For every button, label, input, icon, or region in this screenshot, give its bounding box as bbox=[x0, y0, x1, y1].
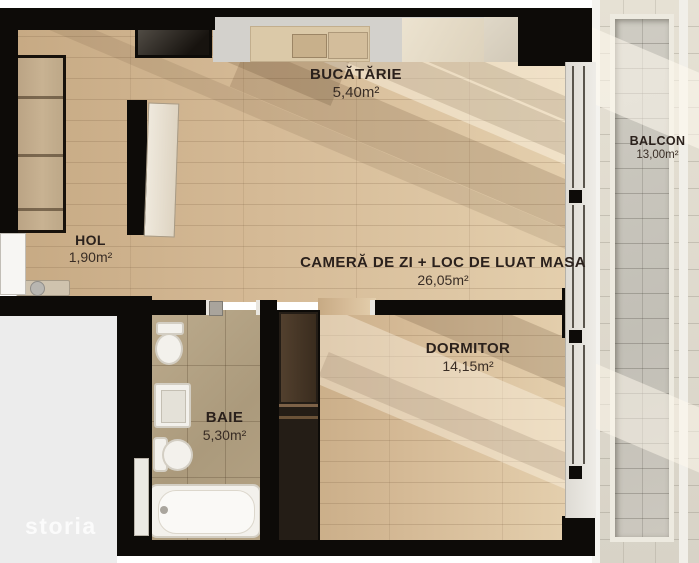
wall-top-right-pillar bbox=[518, 8, 592, 66]
bedroom-wardrobe bbox=[277, 310, 320, 542]
entrance-door-leaf bbox=[0, 233, 26, 295]
room-area: 5,30m² bbox=[172, 427, 277, 443]
room-label-baie: BAIE 5,30m² bbox=[172, 409, 277, 443]
room-label-camera-de-zi: CAMERĂ DE ZI + LOC DE LUAT MASA 26,05m² bbox=[265, 254, 621, 288]
wall-bathroom-top bbox=[152, 300, 206, 315]
bidet-bowl bbox=[162, 439, 193, 471]
wall-left bbox=[0, 8, 18, 234]
bathtub-interior bbox=[158, 490, 255, 534]
open-door-leaf bbox=[144, 102, 180, 237]
window-mullion bbox=[569, 190, 582, 203]
floor-plan: BUCĂTĂRIE 5,40m² HOL 1,90m² CAMERĂ DE ZI… bbox=[0, 0, 699, 563]
room-label-balcon: BALCON 13,00m² bbox=[605, 134, 699, 161]
wall-bottom bbox=[117, 540, 595, 556]
room-name: HOL bbox=[38, 232, 143, 248]
room-name: DORMITOR bbox=[393, 340, 543, 357]
wall-bottom-right-pillar bbox=[562, 516, 595, 556]
room-name: BALCON bbox=[605, 134, 699, 148]
bathroom-wall-shelf bbox=[134, 458, 149, 536]
wardrobe-shelf bbox=[11, 96, 63, 99]
kitchen-stove bbox=[328, 32, 368, 59]
room-area: 14,15m² bbox=[393, 358, 543, 374]
room-label-bucatarie: BUCĂTĂRIE 5,40m² bbox=[266, 66, 446, 101]
wardrobe-shelf bbox=[279, 416, 318, 419]
window-glass bbox=[572, 66, 574, 188]
room-name: CAMERĂ DE ZI + LOC DE LUAT MASA bbox=[265, 254, 621, 271]
toilet-bowl bbox=[155, 333, 183, 365]
wall-top bbox=[215, 8, 525, 17]
window-glass bbox=[583, 66, 585, 188]
room-label-dormitor: DORMITOR 14,15m² bbox=[393, 340, 543, 374]
kitchen-sink bbox=[292, 34, 327, 58]
room-name: BAIE bbox=[172, 409, 277, 426]
storia-logo: storia bbox=[25, 513, 97, 540]
window-mullion bbox=[569, 330, 582, 343]
wardrobe-shelf bbox=[11, 208, 63, 211]
sunlight-patch bbox=[592, 349, 699, 490]
room-area: 5,40m² bbox=[266, 84, 446, 101]
wardrobe-shelf bbox=[279, 404, 318, 407]
bathroom-door-jamb bbox=[256, 300, 260, 315]
wall-top-left bbox=[0, 8, 215, 30]
console-bowl bbox=[30, 281, 45, 296]
wardrobe-shelf bbox=[11, 154, 63, 157]
window-glass bbox=[572, 345, 574, 464]
window-wall bbox=[565, 62, 596, 518]
hall-wardrobe bbox=[10, 55, 66, 233]
window-glass bbox=[583, 345, 585, 464]
bathtub-faucet bbox=[160, 506, 168, 514]
window-mullion bbox=[569, 466, 582, 479]
room-name: BUCĂTĂRIE bbox=[266, 66, 446, 83]
kitchen-counter-sunlit bbox=[402, 18, 484, 62]
bedroom-door-jamb bbox=[370, 300, 375, 315]
room-area: 13,00m² bbox=[605, 149, 699, 161]
room-area: 1,90m² bbox=[38, 249, 143, 265]
wardrobe-upper-section bbox=[281, 314, 316, 402]
room-label-hol: HOL 1,90m² bbox=[38, 232, 143, 265]
room-area: 26,05m² bbox=[265, 272, 621, 288]
bathroom-door bbox=[209, 301, 223, 316]
